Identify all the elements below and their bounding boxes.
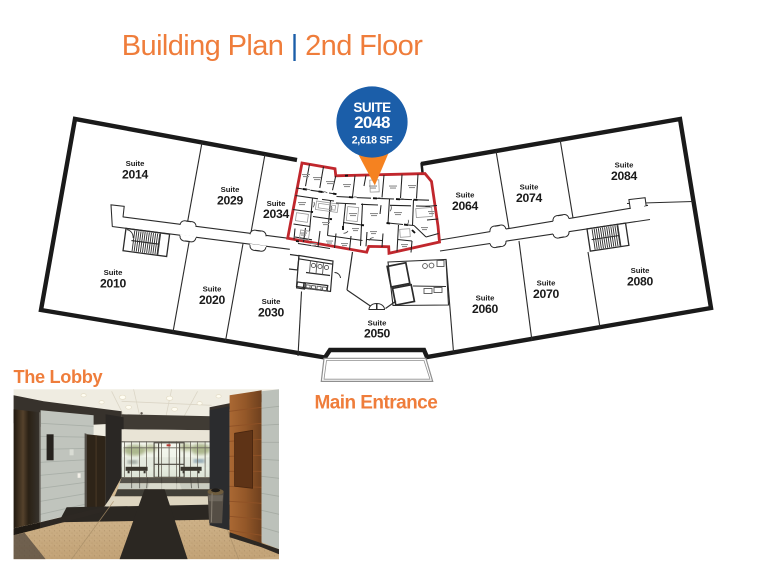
svg-text:2080: 2080 xyxy=(627,275,653,289)
svg-text:The Lobby: The Lobby xyxy=(14,367,104,387)
svg-text:Main Entrance: Main Entrance xyxy=(315,393,438,414)
svg-text:Building Plan | 2nd Floor: Building Plan | 2nd Floor xyxy=(122,30,423,62)
svg-text:2074: 2074 xyxy=(516,191,542,205)
svg-text:2010: 2010 xyxy=(100,277,126,291)
svg-text:2084: 2084 xyxy=(611,169,637,183)
svg-text:2060: 2060 xyxy=(472,302,498,316)
svg-text:2029: 2029 xyxy=(217,194,243,208)
svg-text:2030: 2030 xyxy=(258,306,284,320)
svg-text:2020: 2020 xyxy=(199,293,225,307)
svg-text:2070: 2070 xyxy=(533,287,559,301)
svg-text:2014: 2014 xyxy=(122,168,148,182)
svg-text:2,618 SF: 2,618 SF xyxy=(352,135,393,147)
svg-text:2034: 2034 xyxy=(263,207,289,221)
svg-text:2050: 2050 xyxy=(364,327,390,341)
svg-text:2064: 2064 xyxy=(452,199,478,213)
svg-text:2048: 2048 xyxy=(354,113,390,132)
